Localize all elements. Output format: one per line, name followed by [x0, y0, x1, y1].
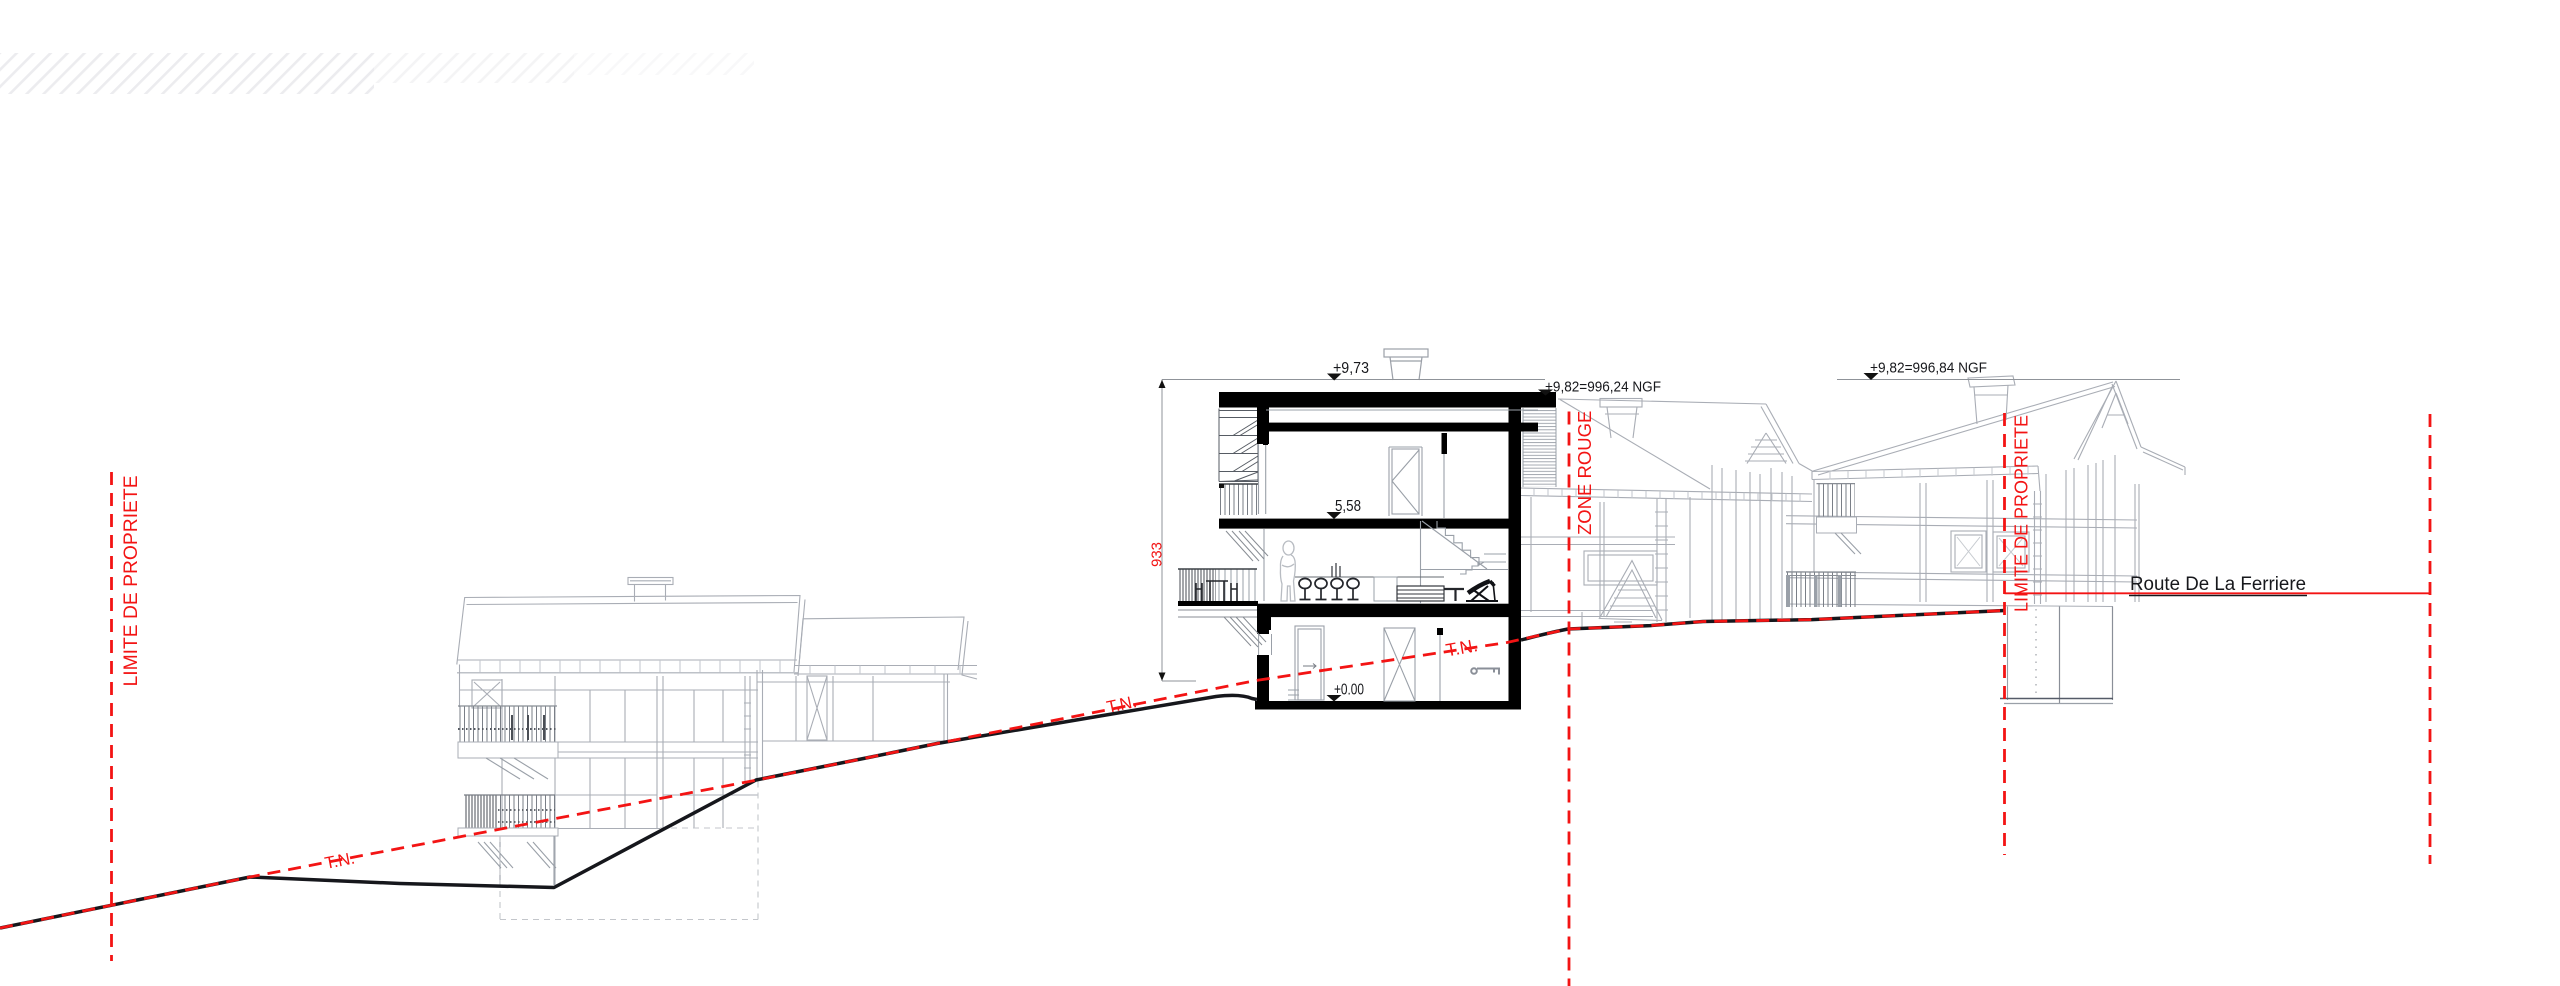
svg-text:933: 933 [1149, 542, 1166, 567]
svg-text:+9,82=996,24 NGF: +9,82=996,24 NGF [1545, 379, 1661, 396]
svg-text:ZONE ROUGE: ZONE ROUGE [1574, 411, 1595, 535]
svg-text:+9,82=996,84 NGF: +9,82=996,84 NGF [1870, 360, 1987, 377]
svg-text:LIMITE DE PROPRIETE: LIMITE DE PROPRIETE [2012, 415, 2032, 612]
svg-text:Route De La Ferriere: Route De La Ferriere [2130, 574, 2306, 595]
svg-text:LIMITE DE PROPRIETE: LIMITE DE PROPRIETE [121, 475, 142, 686]
